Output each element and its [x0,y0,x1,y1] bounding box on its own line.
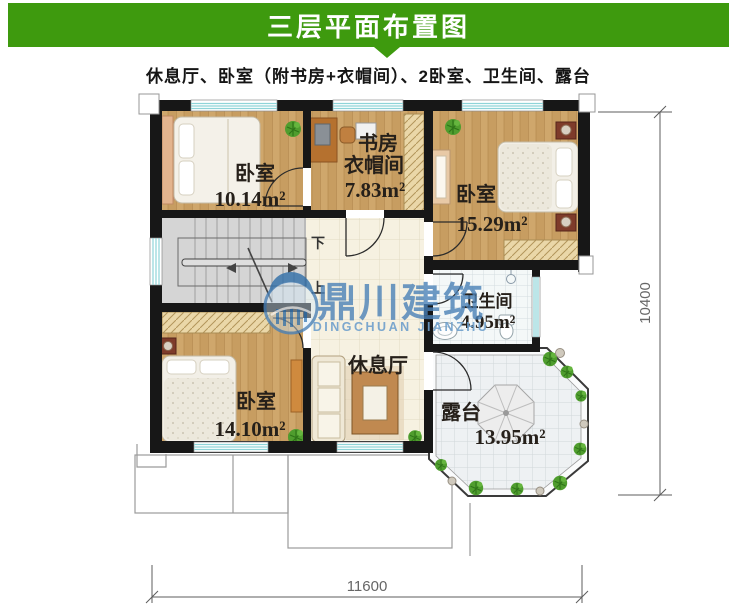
window [333,100,403,111]
pillow [167,360,196,374]
label-lounge: 休息厅 [347,353,408,377]
window [191,100,277,111]
window [462,100,543,111]
area-bedroom-top-right: 15.29m² [456,212,527,236]
plant-icon [285,121,301,137]
flower-pot [536,487,544,495]
label-bedroom-top-right: 卧室 [456,182,496,206]
page: 三层平面布置图 休息厅、卧室（附书房+衣帽间）、2卧室、卫生间、露台 [0,0,737,614]
label-study-line2: 衣帽间 [344,153,404,177]
area-bedroom-bottom-left: 14.10m² [214,417,285,441]
label-bedroom-bottom-left: 卧室 [236,389,276,413]
area-bedroom-top-left: 10.14m² [214,187,285,211]
plant-icon [445,119,461,135]
window [337,442,403,452]
watermark-cn: 鼎川建筑 [317,280,485,325]
dimension-bottom-label: 11600 [347,578,388,595]
area-study: 7.83m² [345,178,406,202]
desk-chair [340,127,355,143]
desk-monitor [315,124,330,145]
stair-handrail [182,259,306,266]
pillow [179,161,194,195]
plant-icon [435,459,447,471]
pillow [556,148,572,176]
dimension-right-label: 10400 [637,282,654,324]
wardrobe [404,114,424,212]
floor-plan: 卧室 10.14m² 书房 衣帽间 7.83m² 卧室 15.29m² 卫生间 … [0,0,737,614]
wardrobe [162,312,270,333]
plant-icon [575,390,586,401]
plant-icon [469,481,483,495]
pillow [556,180,572,208]
flower-pot [580,420,588,428]
wardrobe [504,240,578,262]
flower-pot [448,477,456,485]
flower-pot [556,349,565,358]
area-terrace: 13.95m² [474,425,545,449]
plant-icon [553,476,567,490]
plant-icon [511,483,524,496]
window [150,238,162,285]
bed-headboard [162,116,173,204]
lower-floor-outline [135,444,470,556]
watermark: 鼎川建筑 DINGCHUAN JIANZHU [265,272,489,334]
pillow [179,124,194,158]
tv-cabinet [291,360,302,412]
window [532,277,540,337]
plant-icon [561,366,574,379]
watermark-en: DINGCHUAN JIANZHU [313,320,490,334]
plant-icon [543,352,557,366]
label-bedroom-top-left: 卧室 [235,161,275,185]
pillow [200,360,229,374]
plant-icon [574,443,587,456]
stair-down-label: 下 [311,236,325,252]
label-study-line1: 书房 [358,131,398,155]
window [194,442,268,452]
label-terrace: 露台 [441,400,481,424]
